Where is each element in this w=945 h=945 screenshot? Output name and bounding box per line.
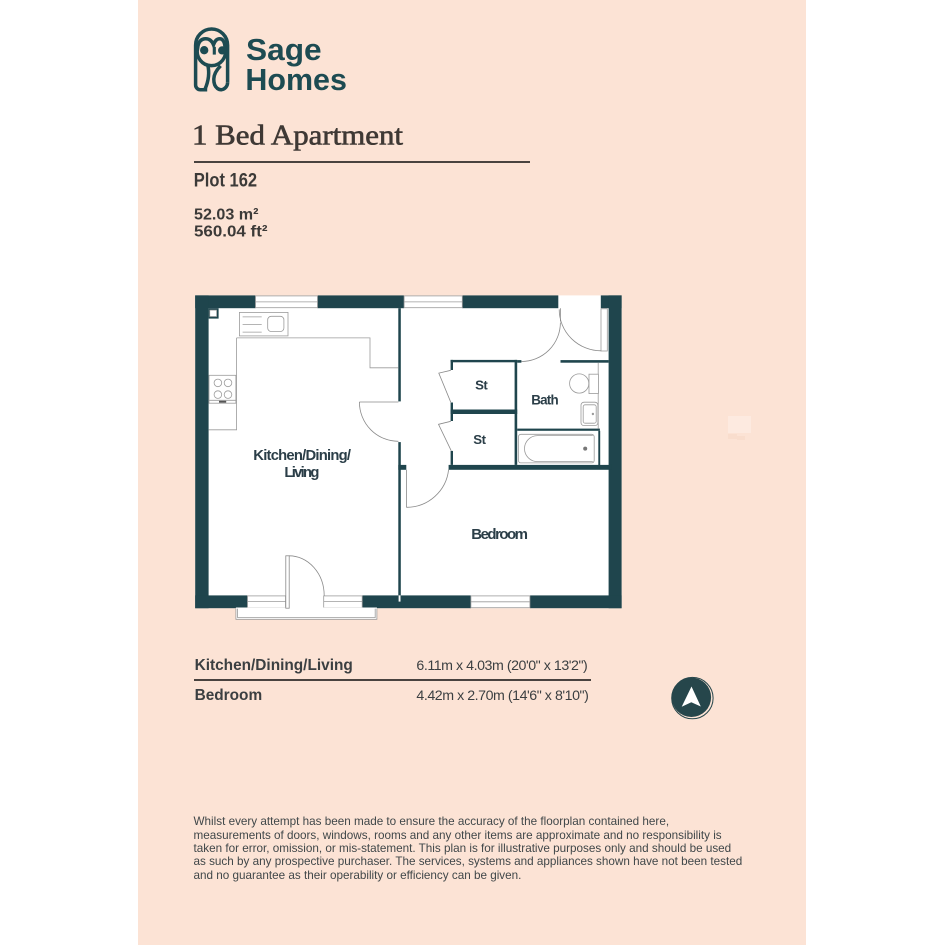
svg-text:Kitchen/Dining/: Kitchen/Dining/ (253, 448, 351, 464)
svg-text:St: St (473, 432, 486, 447)
svg-text:52.03 m²: 52.03 m² (194, 206, 259, 223)
svg-text:Bedroom: Bedroom (471, 526, 528, 543)
svg-text:560.04 ft²: 560.04 ft² (194, 223, 268, 240)
svg-text:1 Bed Apartment: 1 Bed Apartment (192, 120, 403, 151)
svg-text:Homes: Homes (245, 62, 347, 96)
svg-text:St: St (475, 378, 488, 393)
svg-text:Bath: Bath (531, 393, 559, 408)
svg-text:Living: Living (284, 465, 319, 481)
svg-text:Plot 162: Plot 162 (194, 170, 257, 191)
